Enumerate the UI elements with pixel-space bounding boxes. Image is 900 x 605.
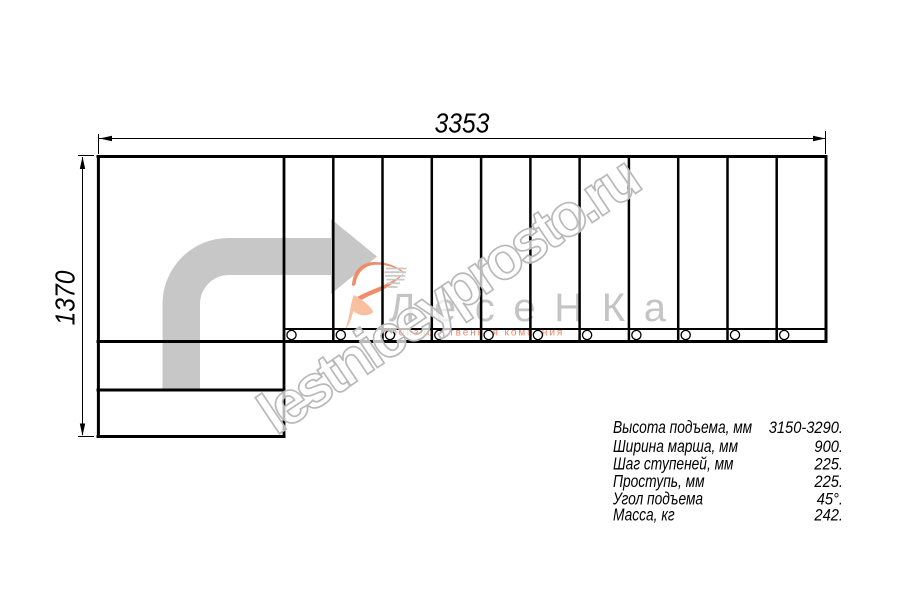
svg-text:3150-3290.: 3150-3290. [769, 419, 843, 437]
svg-text:1370: 1370 [49, 270, 81, 325]
svg-text:225.: 225. [813, 456, 843, 474]
svg-text:Шаг ступеней, мм: Шаг ступеней, мм [613, 455, 734, 474]
svg-text:242.: 242. [813, 507, 843, 525]
svg-text:Масса, кг: Масса, кг [613, 506, 675, 525]
svg-text:Высота подъема, мм: Высота подъема, мм [613, 419, 752, 438]
svg-text:3353: 3353 [435, 107, 490, 139]
svg-text:Проступь, мм: Проступь, мм [613, 473, 705, 492]
svg-text:225.: 225. [813, 473, 843, 491]
svg-text:Ширина марша, мм: Ширина марша, мм [613, 438, 738, 457]
svg-text:900.: 900. [814, 438, 843, 456]
